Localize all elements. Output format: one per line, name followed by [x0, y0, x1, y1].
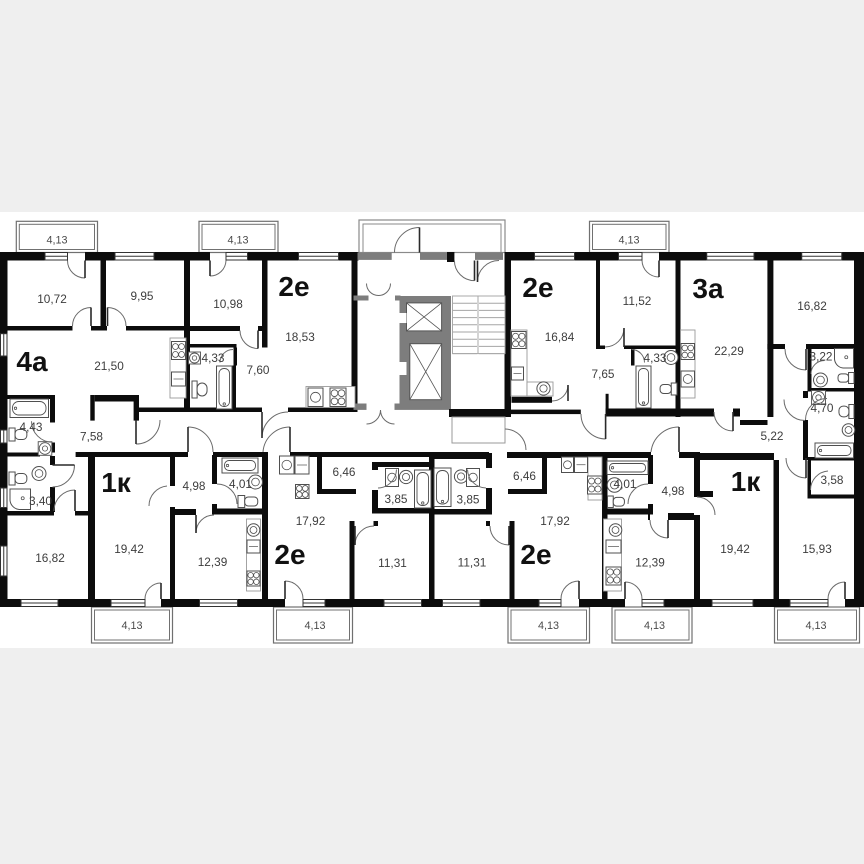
- svg-text:4,13: 4,13: [538, 620, 559, 632]
- svg-text:4,13: 4,13: [46, 235, 67, 247]
- svg-text:4,01: 4,01: [229, 477, 252, 491]
- svg-text:2е: 2е: [274, 539, 305, 570]
- svg-text:4,13: 4,13: [618, 235, 639, 247]
- svg-text:10,72: 10,72: [37, 292, 67, 306]
- svg-text:19,42: 19,42: [720, 542, 750, 556]
- svg-text:4,13: 4,13: [304, 620, 325, 632]
- svg-text:2е: 2е: [278, 271, 309, 302]
- svg-text:11,31: 11,31: [378, 556, 407, 570]
- svg-text:4,98: 4,98: [662, 484, 685, 498]
- svg-text:4,13: 4,13: [805, 620, 826, 632]
- svg-text:3,22: 3,22: [810, 350, 833, 364]
- svg-text:2е: 2е: [520, 539, 551, 570]
- svg-text:4,01: 4,01: [614, 477, 637, 491]
- svg-text:7,60: 7,60: [247, 363, 270, 377]
- svg-text:18,53: 18,53: [285, 330, 315, 344]
- svg-text:10,98: 10,98: [213, 297, 243, 311]
- svg-text:15,93: 15,93: [802, 542, 832, 556]
- svg-text:12,39: 12,39: [635, 556, 665, 570]
- svg-text:12,39: 12,39: [198, 555, 228, 569]
- svg-text:4,98: 4,98: [183, 479, 206, 493]
- svg-text:4,13: 4,13: [227, 235, 248, 247]
- svg-text:7,65: 7,65: [592, 367, 615, 381]
- svg-text:16,82: 16,82: [35, 551, 65, 565]
- svg-text:3,58: 3,58: [821, 473, 844, 487]
- svg-text:4,33: 4,33: [644, 351, 667, 365]
- svg-text:9,95: 9,95: [131, 289, 154, 303]
- svg-text:11,31: 11,31: [458, 556, 487, 570]
- svg-text:11,52: 11,52: [623, 294, 652, 308]
- svg-text:4,43: 4,43: [20, 420, 43, 434]
- svg-text:16,82: 16,82: [797, 299, 827, 313]
- svg-text:16,84: 16,84: [545, 330, 575, 344]
- svg-text:4,70: 4,70: [811, 401, 834, 415]
- svg-text:4,13: 4,13: [644, 620, 665, 632]
- svg-text:5,22: 5,22: [761, 429, 784, 443]
- svg-text:6,46: 6,46: [513, 469, 536, 483]
- svg-text:1к: 1к: [731, 466, 762, 497]
- svg-text:3,85: 3,85: [385, 492, 408, 506]
- svg-text:17,92: 17,92: [296, 514, 326, 528]
- svg-text:17,92: 17,92: [540, 514, 570, 528]
- svg-text:4,33: 4,33: [202, 351, 225, 365]
- svg-text:3,40: 3,40: [29, 494, 52, 508]
- svg-text:19,42: 19,42: [114, 542, 144, 556]
- svg-text:1к: 1к: [101, 467, 132, 498]
- svg-text:4а: 4а: [16, 346, 48, 377]
- svg-text:6,46: 6,46: [333, 465, 356, 479]
- svg-text:7,58: 7,58: [80, 430, 103, 444]
- svg-text:4,13: 4,13: [121, 620, 142, 632]
- svg-text:3а: 3а: [692, 273, 724, 304]
- svg-text:21,50: 21,50: [94, 359, 124, 373]
- svg-text:2е: 2е: [522, 272, 553, 303]
- svg-text:22,29: 22,29: [714, 344, 744, 358]
- svg-text:3,85: 3,85: [457, 493, 480, 507]
